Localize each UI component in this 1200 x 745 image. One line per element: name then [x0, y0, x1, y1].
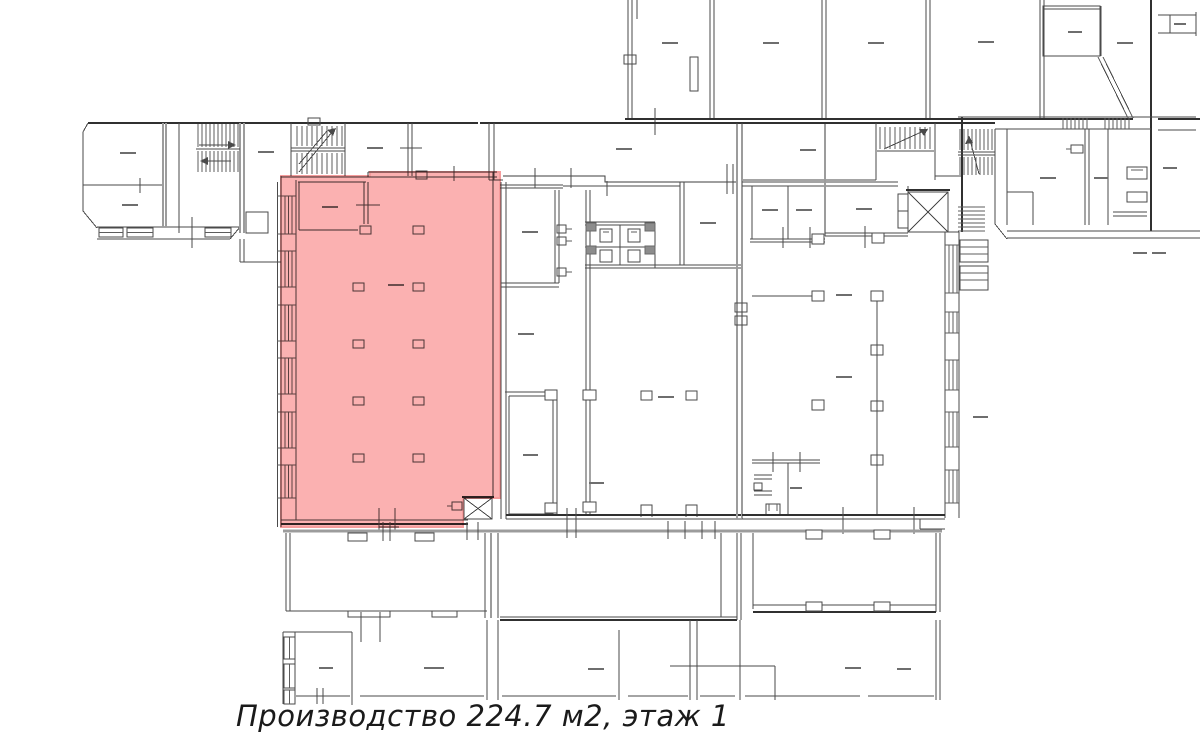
- staircase-2: [291, 118, 345, 176]
- bottom-band-rooms: [283, 521, 942, 620]
- upper-band-left-block: [83, 123, 995, 262]
- lower-rooms: [283, 612, 940, 705]
- middle-rooms: [500, 124, 747, 535]
- staircase-3: [877, 127, 934, 151]
- floorplan-canvas: Производство 224.7 м2, этаж 1: [0, 0, 1200, 745]
- right-wing: [958, 117, 1200, 290]
- right-hall: [742, 124, 988, 534]
- floor-plan-drawing: [0, 0, 1200, 745]
- caption: Производство 224.7 м2, этаж 1: [236, 699, 730, 733]
- highlight-region-production[interactable]: [281, 172, 500, 527]
- staircase-1: [196, 124, 240, 172]
